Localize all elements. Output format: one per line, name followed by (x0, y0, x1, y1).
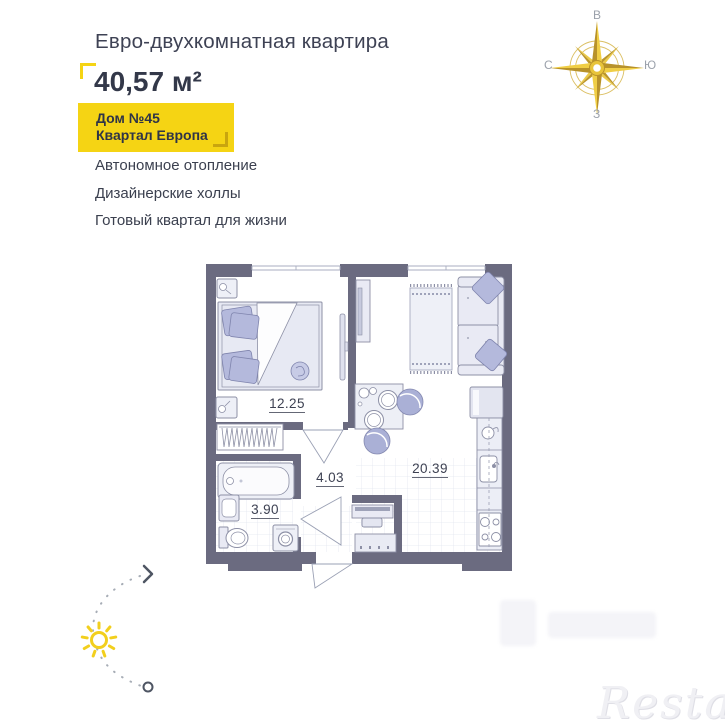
sun-path-icon (62, 558, 172, 698)
room-area-hallway: 4.03 (304, 470, 356, 485)
compass-label-south: Ю (644, 58, 656, 72)
window (252, 262, 340, 277)
feature-item: Готовый квартал для жизни (95, 207, 287, 235)
bedroom-furniture (216, 279, 348, 450)
feature-item: Дизайнерские холлы (95, 180, 287, 208)
compass-label-north: С (544, 58, 553, 72)
apartment-plan-card: Евро-двухкомнатная квартира 40,57 м² Дом… (0, 0, 725, 725)
faint-watermark (498, 598, 663, 650)
feature-item: Автономное отопление (95, 152, 287, 180)
rug (410, 288, 452, 370)
room-area-bedroom: 12.25 (260, 396, 314, 411)
sun-icon (82, 623, 115, 656)
window (408, 262, 485, 277)
shoe-bench (355, 534, 396, 552)
sofa (458, 271, 508, 375)
floorplan-drawing (200, 258, 520, 592)
compass-label-east: В (593, 8, 601, 22)
badge-quarter-name: Квартал Европа (96, 127, 208, 144)
house-badge: Дом №45 Квартал Европа (78, 103, 234, 152)
console (352, 505, 393, 518)
badge-corner-bracket-icon (213, 132, 228, 147)
path-end-circle-icon (144, 683, 153, 692)
room-area-bathroom: 3.90 (239, 502, 291, 517)
dining-set (355, 384, 423, 454)
room-area-kitchen-living: 20.39 (402, 461, 458, 476)
stool (362, 518, 382, 527)
kettle-icon (482, 427, 494, 439)
tv-living (358, 288, 362, 335)
plant-icon (291, 362, 309, 380)
badge-house-number: Дом №45 (96, 110, 208, 127)
kitchen-sink (480, 456, 497, 482)
tv-bedroom (340, 314, 345, 380)
total-area-value: 40,57 м² (94, 66, 202, 98)
entrance-door (312, 564, 352, 588)
arrow-chevron-icon (144, 566, 152, 582)
compass-label-west: З (593, 107, 600, 121)
faucet-icon (227, 478, 234, 485)
restate-watermark: Restate (597, 678, 725, 725)
bedroom-door (303, 430, 343, 463)
floorplan: 12.25 4.03 3.90 20.39 (200, 258, 520, 592)
page-title: Евро-двухкомнатная квартира (95, 30, 389, 54)
feature-list: Автономное отопление Дизайнерские холлы … (95, 152, 287, 235)
